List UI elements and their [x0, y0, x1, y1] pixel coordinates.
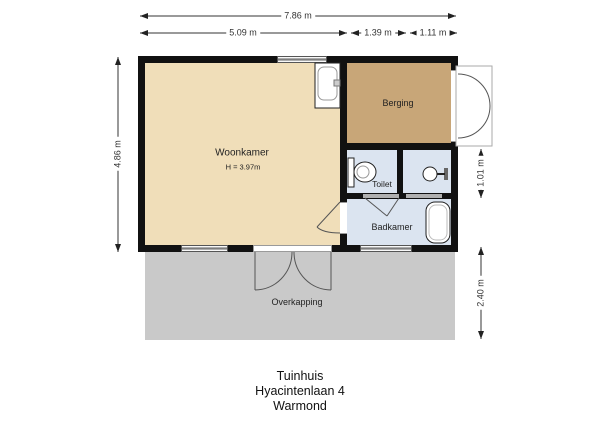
window-badkamer-bottom	[360, 245, 412, 252]
dim-label-toilet-width: 1.39 m	[361, 28, 395, 39]
door-opening-berging	[451, 70, 458, 142]
door-opening-shower	[406, 194, 442, 198]
label-berging: Berging	[382, 98, 413, 108]
door-swing-berging	[456, 66, 492, 146]
dim-label-shower-width: 1.11 m	[417, 28, 450, 39]
window-bottom-left	[181, 245, 228, 252]
room-shower	[403, 150, 451, 193]
title-building: Tuinhuis	[0, 369, 600, 384]
floorplan-canvas: 7.86 m 5.09 m 1.39 m 1.11 m 4.86 m 1.01 …	[0, 0, 600, 424]
window-top-wall	[277, 56, 327, 63]
dim-label-toilet-row-height: 1.01 m	[476, 156, 487, 190]
door-opening-terrace	[253, 245, 332, 252]
dim-label-woonkamer-width: 5.09 m	[226, 28, 260, 39]
dim-label-building-height: 4.86 m	[113, 137, 124, 171]
room-overkapping	[145, 252, 455, 340]
dim-label-total-width: 7.86 m	[281, 11, 315, 22]
label-overkapping: Overkapping	[271, 297, 322, 307]
door-opening-badkamer	[340, 202, 347, 234]
label-badkamer: Badkamer	[371, 222, 412, 232]
title-city: Warmond	[0, 399, 600, 414]
door-opening-toilet	[363, 194, 399, 198]
title-address: Hyacintenlaan 4	[0, 384, 600, 399]
dim-label-overkapping-depth: 2.40 m	[476, 276, 487, 310]
label-toilet: Toilet	[372, 179, 392, 189]
title-block: Tuinhuis Hyacintenlaan 4 Warmond	[0, 369, 600, 414]
label-woonkamer: Woonkamer	[215, 148, 269, 159]
label-woonkamer-height: H = 3.97m	[226, 163, 261, 172]
